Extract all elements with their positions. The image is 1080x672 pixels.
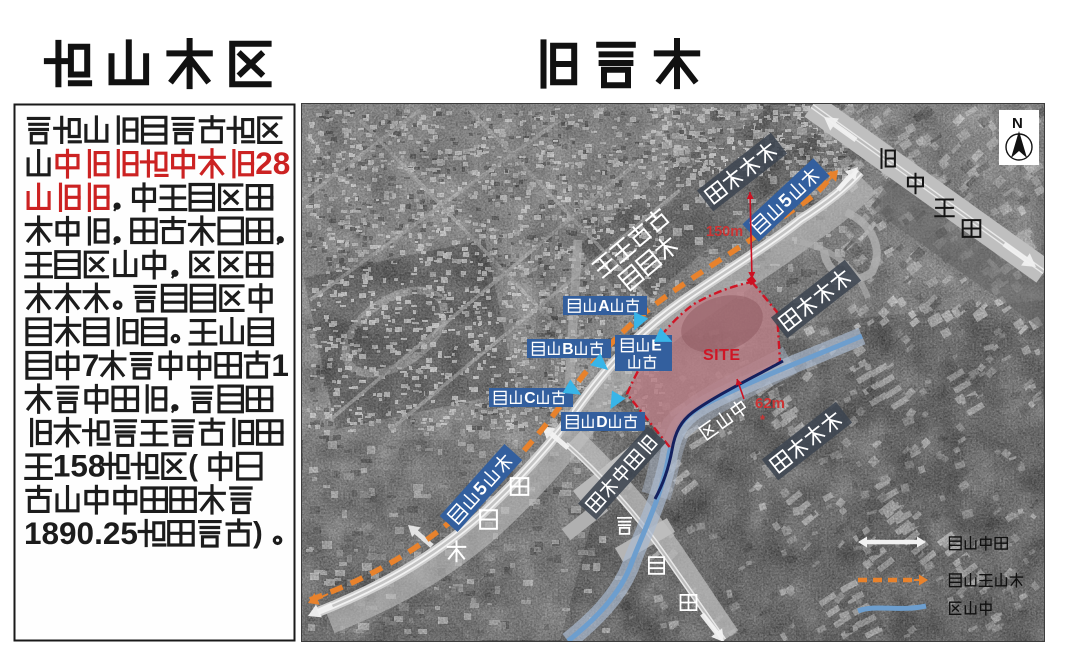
svg-text:(: ( xyxy=(188,450,198,482)
svg-text:158: 158 xyxy=(53,448,106,484)
svg-text:1890.25: 1890.25 xyxy=(24,515,138,551)
svg-text:SITE: SITE xyxy=(703,347,741,364)
svg-text:B: B xyxy=(562,341,573,358)
svg-text:28: 28 xyxy=(255,145,290,181)
svg-text:A: A xyxy=(598,298,609,315)
svg-text:C: C xyxy=(524,390,535,407)
svg-text:): ) xyxy=(253,518,263,550)
svg-text:62m: 62m xyxy=(755,395,785,412)
svg-text:D: D xyxy=(596,414,607,431)
svg-text:N: N xyxy=(1012,115,1023,132)
svg-text:150m: 150m xyxy=(706,224,743,240)
svg-text:1: 1 xyxy=(271,347,289,383)
svg-text:7: 7 xyxy=(82,347,100,383)
